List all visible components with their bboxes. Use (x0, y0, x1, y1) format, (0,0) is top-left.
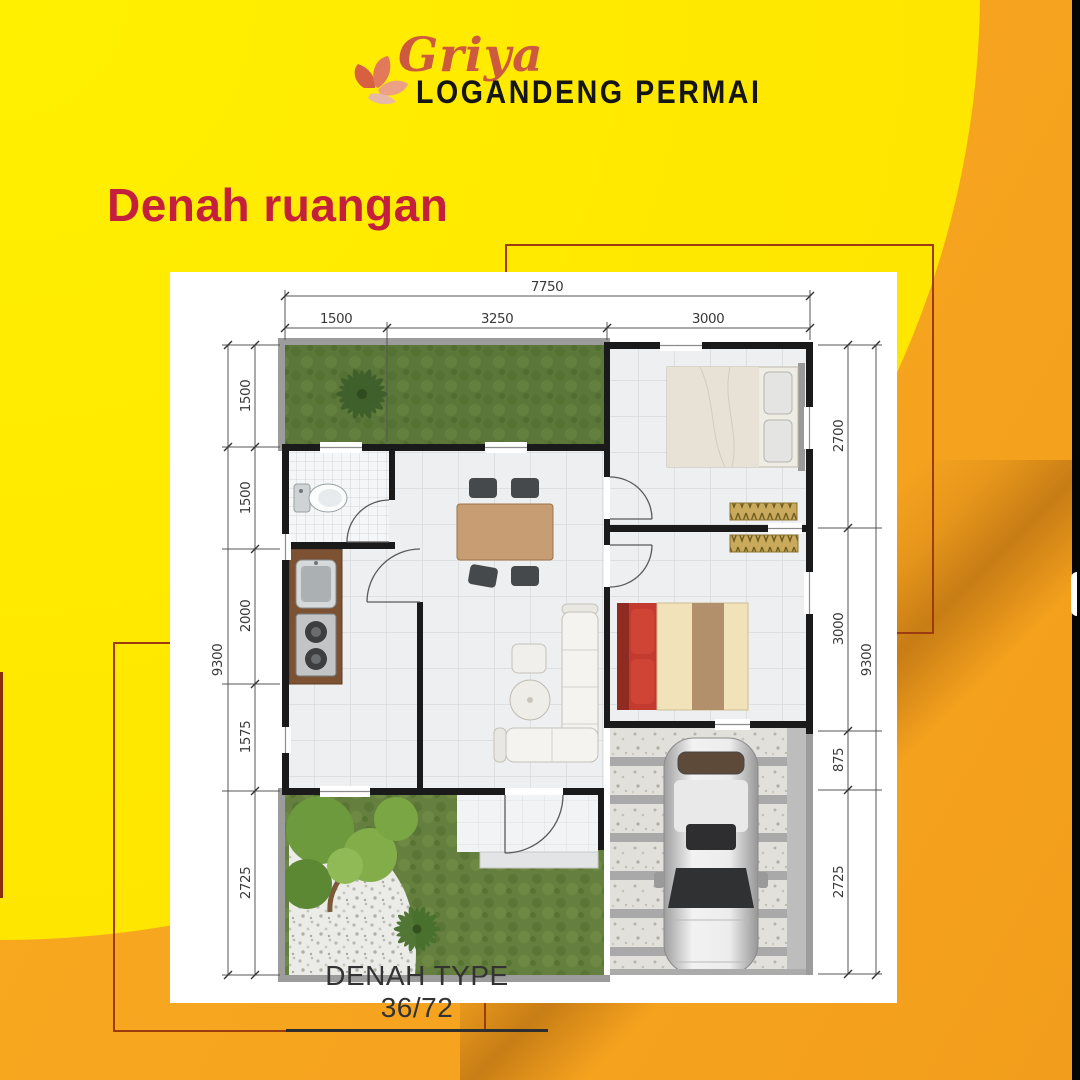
ottoman (512, 644, 546, 673)
bedroom-1-bed (667, 363, 805, 471)
dim-top-seg-1: 1500 (320, 311, 352, 327)
floorplan-card: 7750 1500 3250 3000 9300 1500 1500 2000 … (170, 272, 897, 1003)
mat-2 (730, 535, 798, 552)
page-title: Denah ruangan (107, 178, 448, 232)
dim-left-seg-2: 1500 (238, 482, 254, 514)
plan-caption: DENAH TYPE 36/72 (286, 960, 548, 1032)
dim-left-seg-3: 2000 (238, 600, 254, 632)
kitchen-counter (289, 549, 342, 684)
dim-right-seg-2: 3000 (831, 613, 847, 645)
porch-step (480, 852, 598, 868)
edge-artifact (1071, 572, 1077, 616)
front-garden (285, 345, 604, 444)
bedroom-2-bed (617, 603, 748, 710)
toilet (294, 484, 347, 512)
dim-right-seg-3: 875 (831, 748, 847, 772)
mat-1 (730, 503, 797, 520)
brand-name: LOGANDENG PERMAI (416, 74, 761, 111)
dim-left-total: 9300 (210, 644, 226, 676)
dim-left-seg-1: 1500 (238, 380, 254, 412)
dim-right-seg-4: 2725 (831, 866, 847, 898)
floorplan-drawing: 7750 1500 3250 3000 9300 1500 1500 2000 … (170, 272, 897, 1003)
dim-left-seg-5: 2725 (238, 867, 254, 899)
dim-right-total: 9300 (859, 644, 875, 676)
accent-line-left-edge (0, 672, 3, 898)
dim-right-seg-1: 2700 (831, 420, 847, 452)
dim-top-seg-2: 3250 (481, 311, 513, 327)
dim-top-seg-3: 3000 (692, 311, 724, 327)
porch (457, 795, 598, 852)
carport-car (654, 738, 768, 974)
dim-left-seg-4: 1575 (238, 721, 254, 753)
right-edge-strip (1072, 0, 1080, 1080)
dim-top-total: 7750 (531, 279, 563, 295)
